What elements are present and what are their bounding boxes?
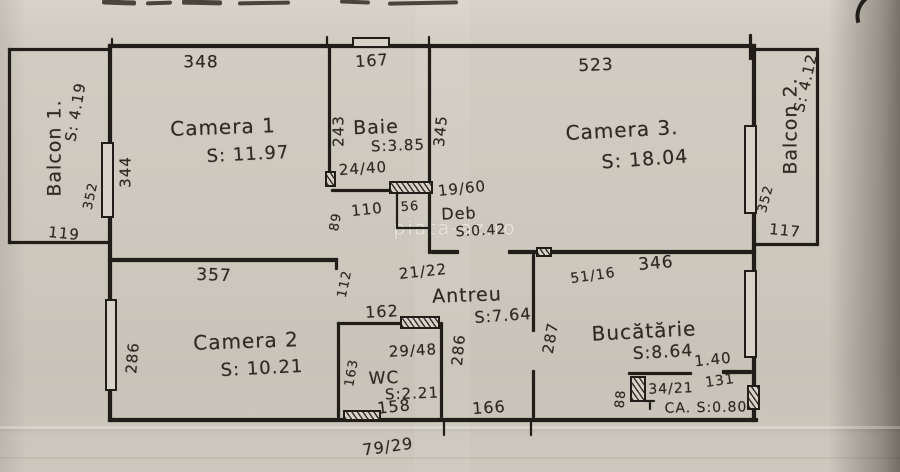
room-area-camera1: S: 11.97 — [206, 144, 290, 166]
door-hatch-symbol — [325, 171, 336, 187]
room-area-balcon1: S: 4.19 — [63, 81, 88, 142]
room-area-bucatarie: S:8.64 — [632, 343, 693, 363]
door-hatch-symbol — [389, 181, 433, 194]
cutoff-handwriting-stroke — [146, 1, 172, 6]
dim-wc-top: 162 — [365, 303, 399, 321]
dim-pantry-width: 131 — [704, 372, 735, 390]
wall-segment — [530, 420, 532, 436]
dim-balcon1-bottom: 119 — [47, 225, 80, 243]
dim-kitchen-left: 287 — [541, 321, 561, 355]
room-label-camara: CA. S:0.80 — [664, 400, 747, 415]
dim-deb-window: 19/60 — [437, 179, 487, 199]
door-hatch-symbol — [400, 316, 440, 329]
dim-camera2-top: 357 — [196, 267, 232, 285]
wall-segment — [396, 227, 430, 229]
wall-segment — [8, 48, 11, 244]
door-hatch-symbol — [747, 385, 760, 410]
room-label-bucatarie: Bucătărie — [591, 318, 697, 343]
window-symbol — [744, 125, 757, 214]
room-area-wc: S:2.21 — [385, 386, 439, 403]
dim-door-2122: 21/22 — [398, 262, 448, 282]
room-label-camera2: Camera 2 — [193, 329, 299, 353]
door-hatch-symbol — [343, 410, 381, 421]
wall-segment — [443, 420, 445, 436]
room-label-camera1: Camera 1 — [170, 115, 276, 139]
window-symbol — [352, 37, 390, 48]
wall-segment — [532, 254, 535, 332]
window-symbol — [105, 299, 117, 391]
wall-segment — [431, 250, 459, 254]
wall-segment — [108, 44, 756, 48]
dim-110: 110 — [350, 201, 383, 219]
wall-segment — [754, 243, 818, 246]
wall-segment — [428, 46, 431, 254]
dim-baie-left: 243 — [332, 115, 347, 147]
room-label-camera3: Camera 3. — [565, 117, 679, 143]
dim-112: 112 — [336, 269, 355, 299]
cutoff-handwriting-stroke — [182, 0, 222, 5]
cutoff-corner-mark — [849, 0, 900, 42]
wall-segment — [754, 48, 818, 51]
wall-segment — [328, 46, 331, 174]
dim-wc-left: 163 — [343, 358, 361, 388]
room-area-antreu: S:7.64 — [474, 306, 532, 326]
dim-kitchen-door: 51/16 — [570, 266, 617, 286]
dim-camera1-left: 344 — [119, 156, 134, 188]
floor-plan-scan: piata-az.ro 34816752334435211924334524/4… — [0, 0, 900, 472]
dim-antreu-right: 286 — [450, 333, 468, 366]
dim-pantry-window: 34/21 — [648, 381, 694, 397]
dim-pantry-door: 1.40 — [694, 351, 733, 370]
wall-segment — [816, 48, 819, 246]
room-area-deb: S:0.42 — [455, 223, 506, 240]
wall-segment — [337, 322, 403, 325]
room-label-deb: Deb — [441, 205, 477, 222]
paper-crease — [0, 457, 900, 459]
wall-segment — [111, 38, 113, 48]
room-label-balcon1: Balcon 1. — [46, 99, 65, 196]
wall-segment — [628, 372, 692, 375]
wall-segment — [752, 44, 756, 422]
wall-segment — [396, 193, 398, 229]
room-area-baie: S:3.85 — [371, 138, 425, 155]
dim-89: 89 — [328, 212, 344, 233]
cutoff-handwriting-stroke — [388, 0, 458, 5]
room-area-camera3: S: 18.04 — [601, 147, 689, 172]
wall-segment — [749, 34, 752, 60]
room-area-camera2: S: 10.21 — [220, 358, 304, 380]
wall-segment — [337, 322, 340, 418]
room-label-antreu: Antreu — [432, 285, 502, 306]
room-label-baie: Baie — [353, 118, 399, 139]
cutoff-handwriting-stroke — [238, 1, 290, 6]
wall-segment — [532, 370, 535, 418]
dim-camera1-top: 348 — [183, 55, 218, 72]
window-symbol — [101, 142, 114, 218]
wall-segment — [331, 189, 391, 192]
wall-segment — [108, 258, 338, 262]
dim-balcon2-window: 352 — [756, 184, 776, 214]
wall-segment — [108, 418, 758, 422]
door-hatch-symbol — [536, 247, 552, 257]
dim-camera3-top: 523 — [578, 57, 614, 75]
cutoff-handwriting-stroke — [340, 0, 370, 5]
dim-baie-door: 24/40 — [338, 160, 387, 178]
dim-balcon1-window: 352 — [82, 181, 101, 211]
wall-segment — [335, 258, 338, 270]
dim-pantry-height: 88 — [614, 389, 629, 409]
dim-wc-door: 79/29 — [362, 436, 415, 459]
dim-baie-top: 167 — [355, 52, 390, 70]
dim-56: 56 — [400, 200, 419, 214]
dim-baie-right: 345 — [432, 114, 450, 147]
dim-kitchen-top: 346 — [638, 254, 675, 274]
door-hatch-symbol — [630, 376, 646, 402]
dim-balcon2-bottom: 117 — [768, 222, 801, 240]
wall-segment — [428, 36, 430, 48]
cutoff-handwriting-stroke — [102, 0, 136, 6]
window-symbol — [744, 270, 757, 358]
wall-segment — [649, 402, 651, 410]
dim-camera2-left: 286 — [124, 342, 142, 375]
wall-segment — [326, 36, 328, 48]
paper-crease — [0, 426, 900, 429]
wall-segment — [8, 48, 110, 51]
dim-wc-window: 29/48 — [389, 342, 438, 360]
wall-segment — [440, 322, 443, 418]
dim-antreu-bottom: 166 — [472, 399, 507, 417]
